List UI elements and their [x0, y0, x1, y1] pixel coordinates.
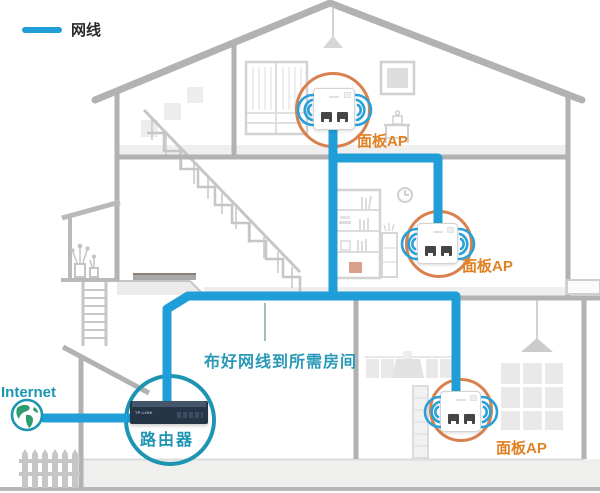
ap-label: 面板AP — [357, 130, 408, 151]
ap-corner-tag — [344, 92, 351, 98]
panel-ap-device — [440, 391, 481, 432]
ethernet-port — [321, 112, 332, 122]
router-label: 路由器 — [140, 426, 194, 450]
ethernet-port — [425, 246, 436, 256]
internet-label: Internet — [1, 384, 56, 401]
panel-ap-device — [417, 223, 458, 264]
ethernet-port — [448, 414, 459, 424]
legend-label: 网线 — [71, 19, 101, 40]
ap-corner-tag — [447, 227, 454, 233]
router-brand-text: TP-LINK — [135, 410, 153, 415]
ap-corner-tag — [470, 395, 477, 401]
ethernet-port — [337, 112, 348, 122]
wifi-arcs-icon — [400, 227, 418, 261]
wifi-arcs-icon — [296, 93, 314, 127]
ap-label: 面板AP — [496, 437, 547, 458]
wifi-arcs-icon — [355, 93, 373, 127]
ap-led-strip — [456, 399, 466, 401]
cable-second-floor-branch — [333, 158, 438, 232]
ethernet-port — [441, 246, 452, 256]
ap-led-strip — [329, 96, 339, 98]
internet-globe-icon — [10, 398, 44, 432]
panel-ap-device — [313, 88, 355, 130]
router-top-face — [132, 401, 206, 407]
router-ports — [177, 412, 203, 418]
ap-label: 面板AP — [462, 255, 513, 276]
annotation-text: 布好网线到所需房间 — [204, 348, 357, 372]
ethernet-port — [464, 414, 475, 424]
wifi-arcs-icon — [423, 395, 441, 429]
router-device: TP-LINK — [130, 401, 208, 424]
ap-led-strip — [433, 231, 443, 233]
wifi-arcs-icon — [481, 395, 499, 429]
network-cables — [0, 0, 600, 493]
legend-cable-swatch — [22, 27, 62, 33]
network-diagram: TP-LINK 网线 Internet 路由器 布好网线到所需房间 面板AP 面… — [0, 0, 600, 493]
